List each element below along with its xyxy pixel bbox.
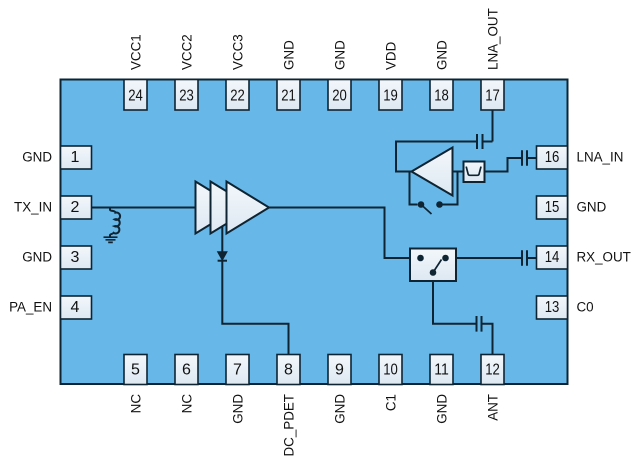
svg-text:GND: GND [333, 394, 348, 424]
svg-text:ANT: ANT [486, 394, 501, 421]
svg-text:C1: C1 [384, 394, 399, 411]
svg-text:15: 15 [545, 199, 560, 216]
svg-text:11: 11 [434, 362, 449, 379]
svg-text:PA_EN: PA_EN [9, 300, 52, 315]
svg-text:19: 19 [383, 88, 398, 105]
svg-text:GND: GND [22, 250, 52, 265]
svg-text:18: 18 [434, 88, 449, 105]
svg-text:GND: GND [231, 394, 246, 424]
svg-text:RX_OUT: RX_OUT [577, 250, 631, 265]
svg-text:12: 12 [485, 362, 500, 379]
svg-text:GND: GND [435, 40, 450, 70]
svg-text:GND: GND [435, 394, 450, 424]
svg-text:VCC2: VCC2 [180, 34, 195, 70]
svg-text:6: 6 [182, 362, 191, 379]
svg-text:13: 13 [545, 299, 560, 316]
svg-text:LNA_IN: LNA_IN [577, 150, 624, 165]
svg-text:NC: NC [180, 394, 195, 414]
svg-text:VCC1: VCC1 [129, 34, 144, 70]
svg-text:4: 4 [71, 299, 80, 316]
svg-text:8: 8 [284, 362, 293, 379]
svg-text:9: 9 [335, 362, 344, 379]
svg-text:16: 16 [545, 149, 560, 166]
svg-text:5: 5 [131, 362, 140, 379]
svg-text:21: 21 [281, 88, 296, 105]
svg-text:C0: C0 [577, 300, 594, 315]
svg-text:GND: GND [577, 200, 607, 215]
svg-text:VCC3: VCC3 [231, 34, 246, 70]
svg-text:NC: NC [129, 394, 144, 414]
svg-text:23: 23 [179, 88, 194, 105]
svg-text:20: 20 [332, 88, 347, 105]
svg-text:GND: GND [22, 150, 52, 165]
svg-text:GND: GND [333, 40, 348, 70]
svg-text:GND: GND [282, 40, 297, 70]
svg-text:7: 7 [233, 362, 242, 379]
svg-text:17: 17 [485, 88, 500, 105]
svg-text:LNA_OUT: LNA_OUT [486, 8, 501, 70]
svg-text:VDD: VDD [384, 41, 399, 70]
svg-text:3: 3 [71, 249, 80, 266]
svg-text:24: 24 [128, 88, 143, 105]
svg-text:TX_IN: TX_IN [14, 200, 52, 215]
svg-text:DC_PDET: DC_PDET [282, 394, 297, 457]
svg-text:22: 22 [230, 88, 245, 105]
svg-text:1: 1 [71, 149, 80, 166]
svg-text:2: 2 [71, 199, 80, 216]
svg-text:10: 10 [383, 362, 398, 379]
svg-text:14: 14 [545, 249, 560, 266]
